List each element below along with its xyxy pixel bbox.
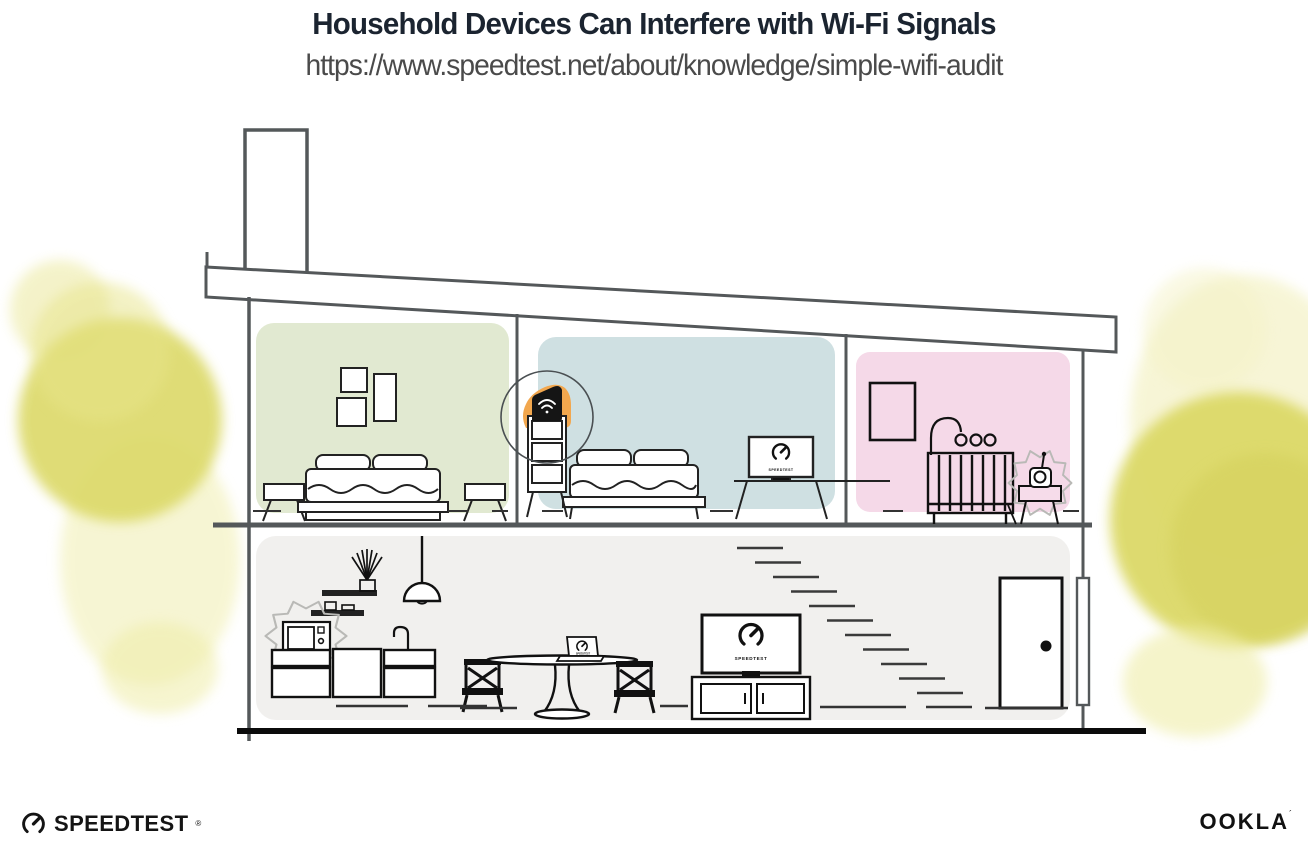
picture-frame <box>341 368 367 392</box>
crib <box>928 453 1016 524</box>
ookla-trademark: ´ <box>1289 809 1292 819</box>
speedtest-logo-text: SPEEDTEST <box>54 811 188 837</box>
page-title: Household Devices Can Interfere with Wi-… <box>33 6 1276 42</box>
speedtest-logo: SPEEDTEST ® <box>20 810 201 837</box>
media-console <box>692 677 810 719</box>
downspout <box>1077 578 1089 705</box>
speedtest-trademark: ® <box>195 819 201 828</box>
picture-frame <box>337 398 366 426</box>
entry <box>1000 578 1062 708</box>
house-illustration: SPEEDTEST <box>0 0 1308 861</box>
wifi-router <box>532 386 562 421</box>
ookla-logo: OOKLA´ <box>1200 809 1292 835</box>
bedroom-tv-label: SPEEDTEST <box>769 468 794 472</box>
picture-frame <box>374 374 396 421</box>
living-tv-label: SPEEDTEST <box>735 656 768 661</box>
tree-left <box>10 260 240 714</box>
door <box>1000 578 1062 708</box>
living-area: SPEEDTEST <box>692 615 810 719</box>
door-knob <box>1041 641 1052 652</box>
tree-right <box>1110 268 1308 737</box>
ookla-logo-text: OOKLA <box>1200 809 1289 834</box>
bed <box>298 455 448 520</box>
infographic-canvas: Household Devices Can Interfere with Wi-… <box>0 0 1308 861</box>
chimney <box>245 130 307 292</box>
monitor-table <box>1019 486 1061 501</box>
laptop-label: SPEEDTEST <box>576 653 591 656</box>
speedtest-gauge-icon <box>20 810 47 837</box>
header: Household Devices Can Interfere with Wi-… <box>0 6 1308 83</box>
living-tv: SPEEDTEST <box>702 615 800 676</box>
source-url: https://www.speedtest.net/about/knowledg… <box>39 49 1269 83</box>
